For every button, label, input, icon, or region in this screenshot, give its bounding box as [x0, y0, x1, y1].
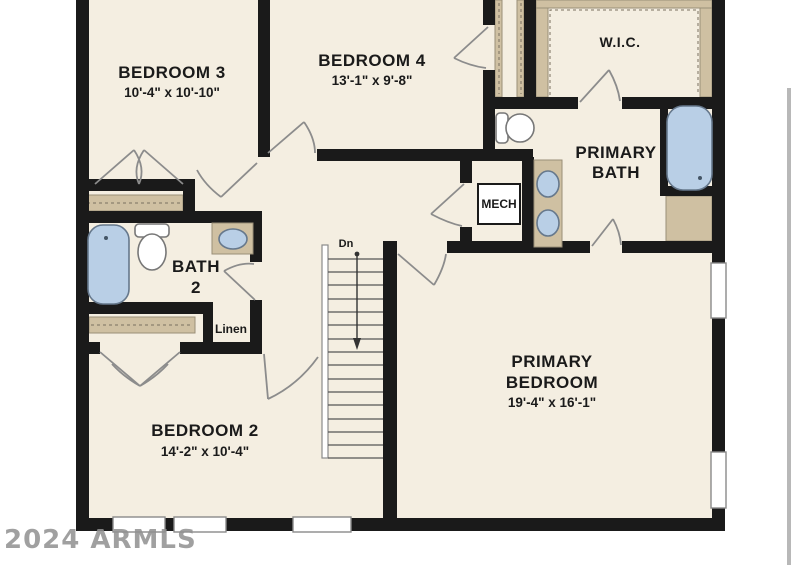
primary-bedroom-label-1: PRIMARY	[511, 352, 592, 371]
linen-label: Linen	[215, 322, 247, 336]
floor-plan-canvas: Dn	[0, 0, 800, 565]
primary-bath-sink-2	[537, 210, 559, 236]
bath2-tub	[88, 225, 129, 304]
primary-bath-tub	[667, 106, 712, 190]
bath2-label-2: 2	[191, 278, 201, 297]
primary-bath-tub-drain	[698, 176, 702, 180]
window	[711, 452, 726, 508]
primary-bath-label-1: PRIMARY	[575, 143, 656, 162]
bedroom2-dims: 14'-2" x 10'-4"	[161, 444, 249, 459]
armls-watermark: 2024 ARMLS	[4, 525, 197, 555]
primary-bath-sink-1	[537, 171, 559, 197]
primary-bath-toilet	[496, 113, 534, 143]
bedroom2-label: BEDROOM 2	[151, 421, 258, 440]
bedroom3-dims: 10'-4" x 10'-10"	[124, 85, 220, 100]
primary-bedroom-label-2: BEDROOM	[506, 373, 598, 392]
primary-bath-label-2: BATH	[592, 163, 640, 182]
window	[711, 263, 726, 318]
bath2-sink	[219, 229, 247, 249]
stair-rail	[322, 245, 328, 458]
bedroom4-label: BEDROOM 4	[318, 51, 426, 70]
bath2-label-1: BATH	[172, 257, 220, 276]
window	[293, 517, 351, 532]
stairs-down-label: Dn	[339, 238, 354, 250]
bath2-toilet	[135, 224, 169, 270]
bath2-tub-drain	[104, 236, 108, 240]
primary-bedroom-dims: 19'-4" x 16'-1"	[508, 395, 596, 410]
wic-label: W.I.C.	[599, 34, 640, 50]
screen-edge-line	[787, 88, 791, 565]
mech-label: MECH	[481, 197, 516, 211]
bedroom3-label: BEDROOM 3	[118, 63, 225, 82]
floor-plan: Dn	[0, 0, 800, 565]
bedroom4-dims: 13'-1" x 9'-8"	[332, 73, 413, 88]
